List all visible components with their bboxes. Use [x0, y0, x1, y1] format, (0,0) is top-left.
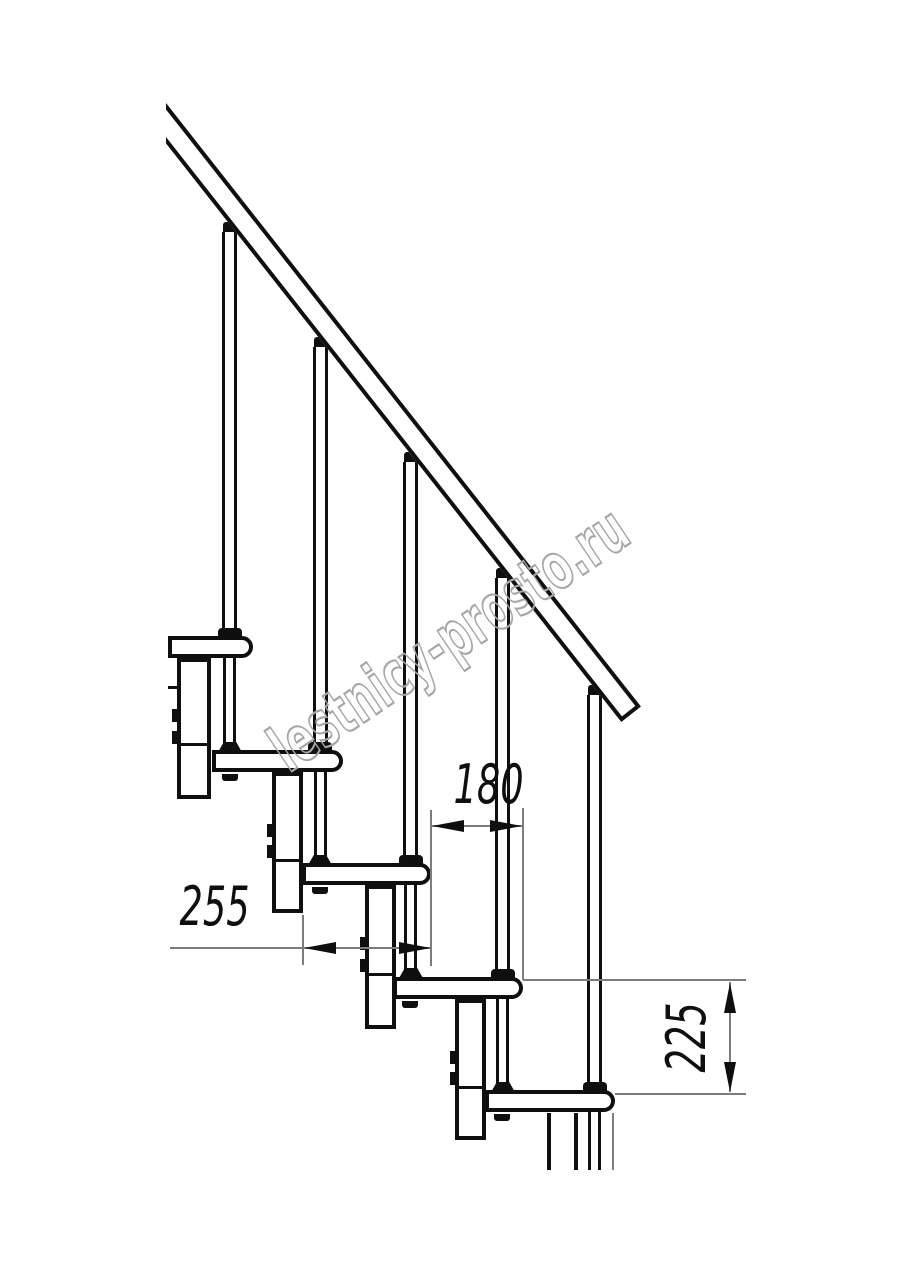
connecting-rod-5: [588, 1111, 601, 1170]
dim-180-label: 180: [437, 760, 525, 810]
baluster-base-mount: [399, 855, 423, 864]
extension-line: [523, 979, 746, 981]
column-bolt: [360, 959, 369, 972]
dim-180-value: 180: [453, 760, 523, 810]
column-bolt: [267, 845, 276, 858]
support-column-2: [272, 772, 303, 913]
rod-foot: [490, 1082, 516, 1094]
baluster-base-mount: [491, 969, 515, 978]
dim-225-value: 225: [665, 1002, 709, 1072]
connecting-rod-2: [314, 770, 327, 866]
dim-255-value: 255: [179, 882, 249, 932]
tread-4: [393, 977, 523, 999]
rod-nut: [222, 774, 238, 781]
dim-arrow-up: [724, 983, 736, 1013]
extension-line: [302, 915, 304, 965]
extension-line: [522, 808, 524, 980]
rod-nut: [402, 1001, 418, 1008]
column-joint-line: [459, 1086, 482, 1089]
rod-nut: [494, 1114, 510, 1121]
support-column-4: [455, 999, 486, 1140]
column-bolt: [267, 824, 276, 837]
handrail-clip: [166, 94, 688, 746]
column-joint-line: [276, 859, 299, 862]
dim-arrow-right: [399, 942, 431, 954]
support-column-5: [547, 1113, 578, 1170]
column-joint-line: [369, 973, 392, 976]
dim-arrow-right: [490, 820, 522, 832]
extension-line: [612, 1113, 614, 1170]
dim-255-label: 255: [163, 882, 251, 932]
dim-arrow-down: [724, 1062, 736, 1092]
dim-arrow-left: [432, 820, 464, 832]
rod-nut: [312, 887, 328, 894]
rod-foot: [398, 968, 424, 980]
dim-225-label: 225: [665, 972, 709, 1102]
staircase-elevation-drawing: 180 255 225 lestnicy-prosto.ru: [0, 0, 914, 1280]
dim-arrow-left: [304, 942, 336, 954]
baluster-base-mount: [583, 1082, 607, 1091]
support-column-3: [365, 885, 396, 1029]
connecting-rod-4: [496, 997, 509, 1093]
rod-foot: [307, 855, 333, 867]
column-bolt: [450, 1072, 459, 1085]
handrail: [166, 103, 641, 722]
dim-255-line: [170, 947, 431, 949]
connecting-rod-3: [404, 883, 417, 980]
baluster-5: [587, 695, 602, 1082]
column-bolt: [450, 1051, 459, 1064]
